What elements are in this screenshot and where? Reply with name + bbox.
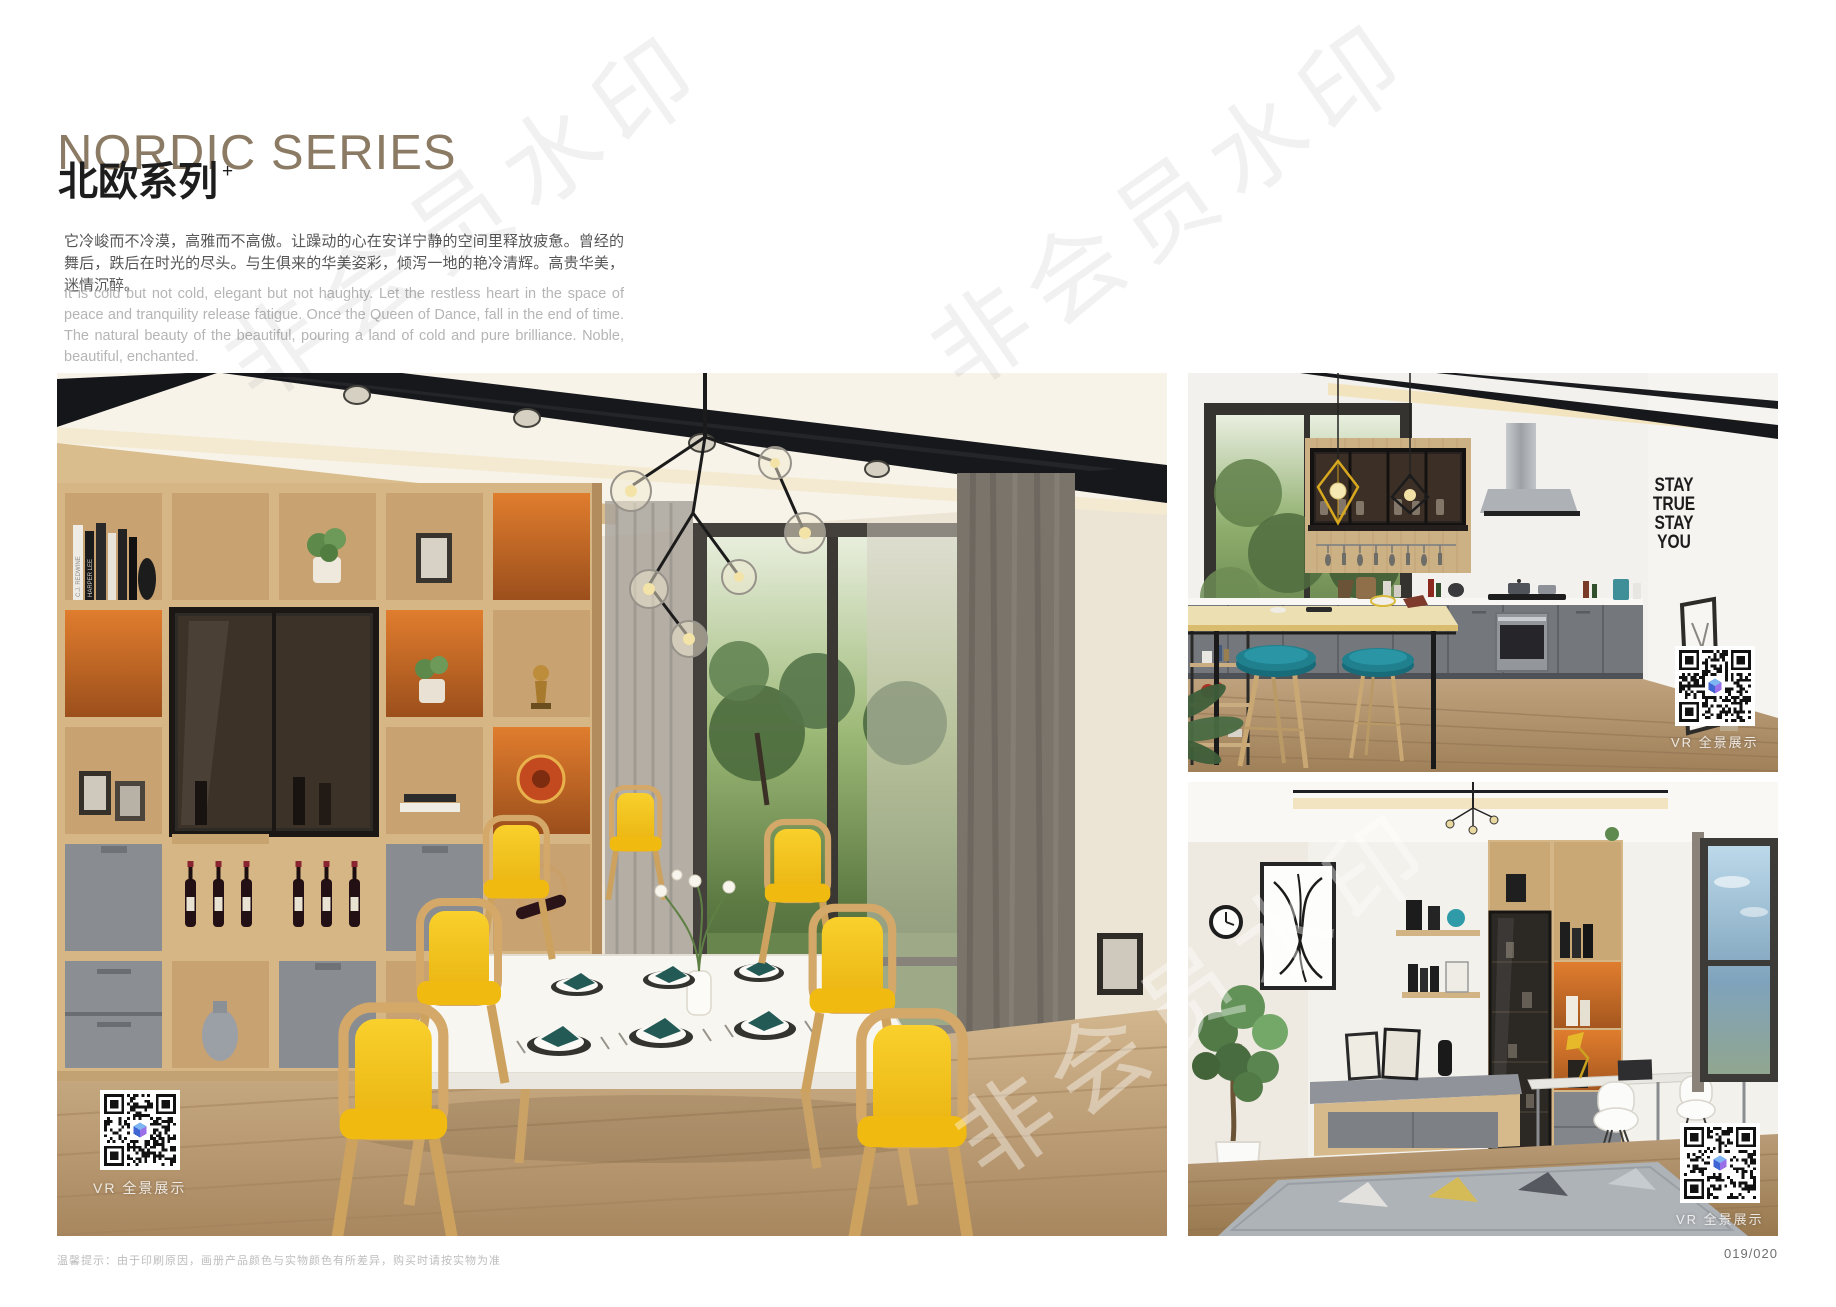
vr-label: VR 全景展示 [93,1178,186,1198]
vr-qr-badge-study: VR 全景展示 [1676,1123,1764,1228]
qr-code [1675,646,1755,726]
intro-paragraph-en: It is cold but not cold, elegant but not… [64,284,624,368]
dining-room-photo: C.J. REDWINE HARPER LEE [57,373,1167,1236]
vr-label: VR 全景展示 [1671,732,1759,751]
dining-room-illustration: C.J. REDWINE HARPER LEE [57,373,1167,1236]
study-room-photo: VR 全景展示 [1188,782,1778,1236]
watermark: 非会员水印 [898,0,1438,416]
qr-code [1680,1123,1760,1203]
catalog-page: NORDIC SERIES 北欧系列+ 它冷峻而不冷漠，高雅而不高傲。让躁动的心… [0,0,1836,1307]
upper-cabinet [1305,438,1471,573]
svg-text:HARPER LEE: HARPER LEE [88,559,94,597]
disc-art [518,756,564,802]
vr-label: VR 全景展示 [1676,1209,1764,1228]
svg-text:YOU: YOU [1657,531,1691,553]
book-spine-text: C.J. REDWINE [76,556,82,597]
abstract-wall-art [1262,864,1334,988]
study-window [1692,832,1778,1092]
page-number: 019/020 [1724,1246,1778,1261]
qr-code [100,1090,180,1170]
page-subtitle: 北欧系列+ [58,162,233,202]
page-subtitle-text: 北欧系列 [58,160,218,204]
kitchen-photo: STAY TRUE STAY YOU VR 全景展示 [1188,373,1778,772]
subtitle-plus-mark: + [222,161,233,182]
vr-qr-badge-kitchen: VR 全景展示 [1671,646,1759,751]
vr-qr-badge-dining: VR 全景展示 [93,1090,186,1198]
cooktop [1488,594,1566,600]
gray-door [65,844,162,951]
footer-disclaimer: 温馨提示：由于印刷原因，画册产品颜色与实物颜色有所差异，购买时请按实物为准 [57,1252,501,1268]
wall-clock [1211,907,1241,937]
wall-decal-text: STAY TRUE STAY YOU [1653,474,1695,553]
